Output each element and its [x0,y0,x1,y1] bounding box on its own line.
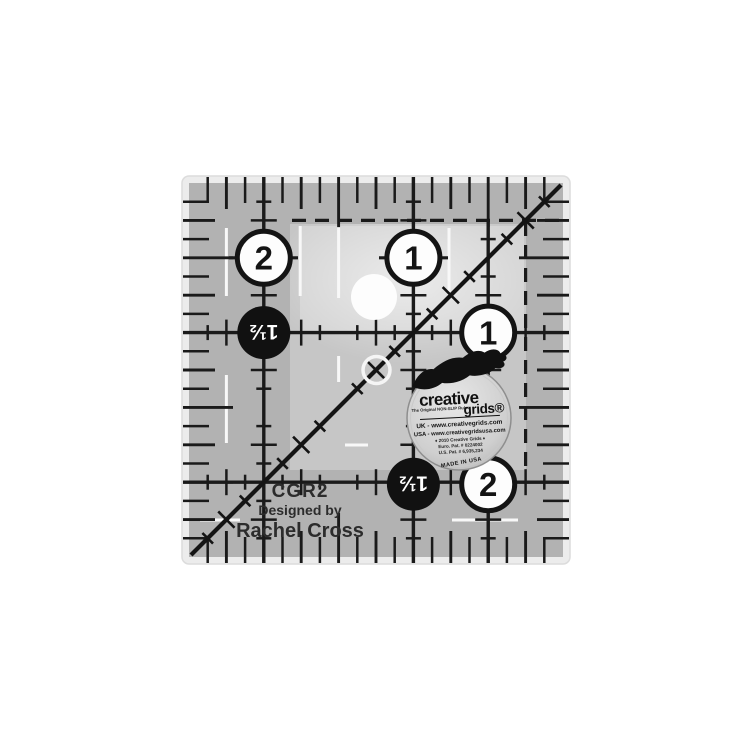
hanging-hole [351,274,397,320]
measurement-badge-2-top-left: 2 [237,231,290,284]
badge-label: 1½ [399,472,428,495]
designed-by-label: Designed by [258,502,341,518]
badge-label: 1 [404,240,422,277]
product-photo: 2 1 1½ 1 1½ 2 CGR2 Designed by Rachel Cr… [0,0,750,750]
badge-label: 2 [255,240,273,277]
quilting-ruler-photo: 2 1 1½ 1 1½ 2 CGR2 Designed by Rachel Cr… [0,0,750,750]
measurement-badge-1-top-mid: 1 [387,231,440,284]
badge-label: 1 [479,314,497,351]
badge-label: 2 [479,466,497,503]
measurement-badge-half-left: 1½ [237,306,290,359]
brand-word-grids: grids® [463,400,505,417]
measurement-badge-half-bottom: 1½ [387,458,440,511]
model-number: CGR2 [272,481,329,502]
badge-label: 1½ [249,320,278,343]
designer-name: Rachel Cross [236,520,364,542]
